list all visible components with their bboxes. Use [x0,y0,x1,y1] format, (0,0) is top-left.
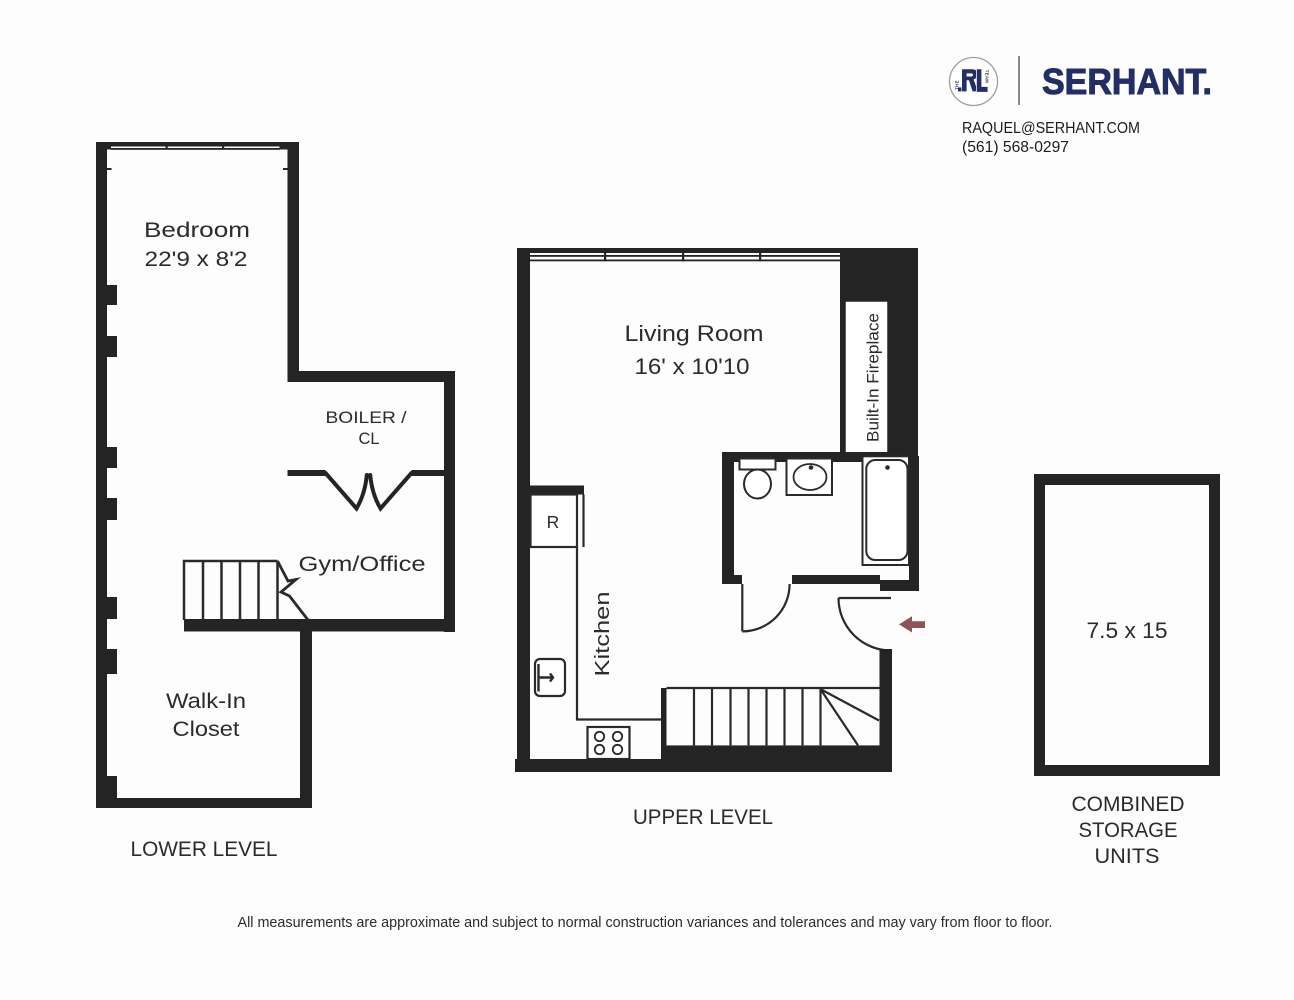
svg-text:Walk-In: Walk-In [166,689,246,713]
svg-text:Kitchen: Kitchen [592,592,614,677]
svg-text:UNITS: UNITS [1095,845,1160,868]
svg-text:UPPER LEVEL: UPPER LEVEL [633,806,773,829]
svg-text:(561) 568-0297: (561) 568-0297 [962,139,1069,156]
svg-text:COMBINED: COMBINED [1072,793,1185,816]
svg-text:16' x 10'10: 16' x 10'10 [635,354,750,379]
svg-text:SERHANT.: SERHANT. [1042,61,1212,102]
svg-text:TEAM: TEAM [985,70,990,83]
svg-text:7.5 x 15: 7.5 x 15 [1087,618,1168,643]
svg-text:Gym/Office: Gym/Office [299,552,426,576]
svg-text:THE: THE [955,80,960,90]
svg-text:R: R [547,512,560,532]
svg-text:STORAGE: STORAGE [1079,819,1178,842]
svg-text:Bedroom: Bedroom [144,218,250,242]
svg-text:Closet: Closet [173,717,240,741]
svg-text:Built-In Fireplace: Built-In Fireplace [865,313,883,442]
svg-text:RAQUEL@SERHANT.COM: RAQUEL@SERHANT.COM [962,120,1140,137]
svg-text:CL: CL [359,430,380,448]
svg-text:22'9 x 8'2: 22'9 x 8'2 [145,247,248,271]
svg-text:LOWER LEVEL: LOWER LEVEL [131,838,278,861]
svg-text:Living Room: Living Room [625,321,764,346]
svg-text:All measurements are approxima: All measurements are approximate and sub… [238,914,1053,931]
svg-text:BOILER /: BOILER / [326,409,407,427]
